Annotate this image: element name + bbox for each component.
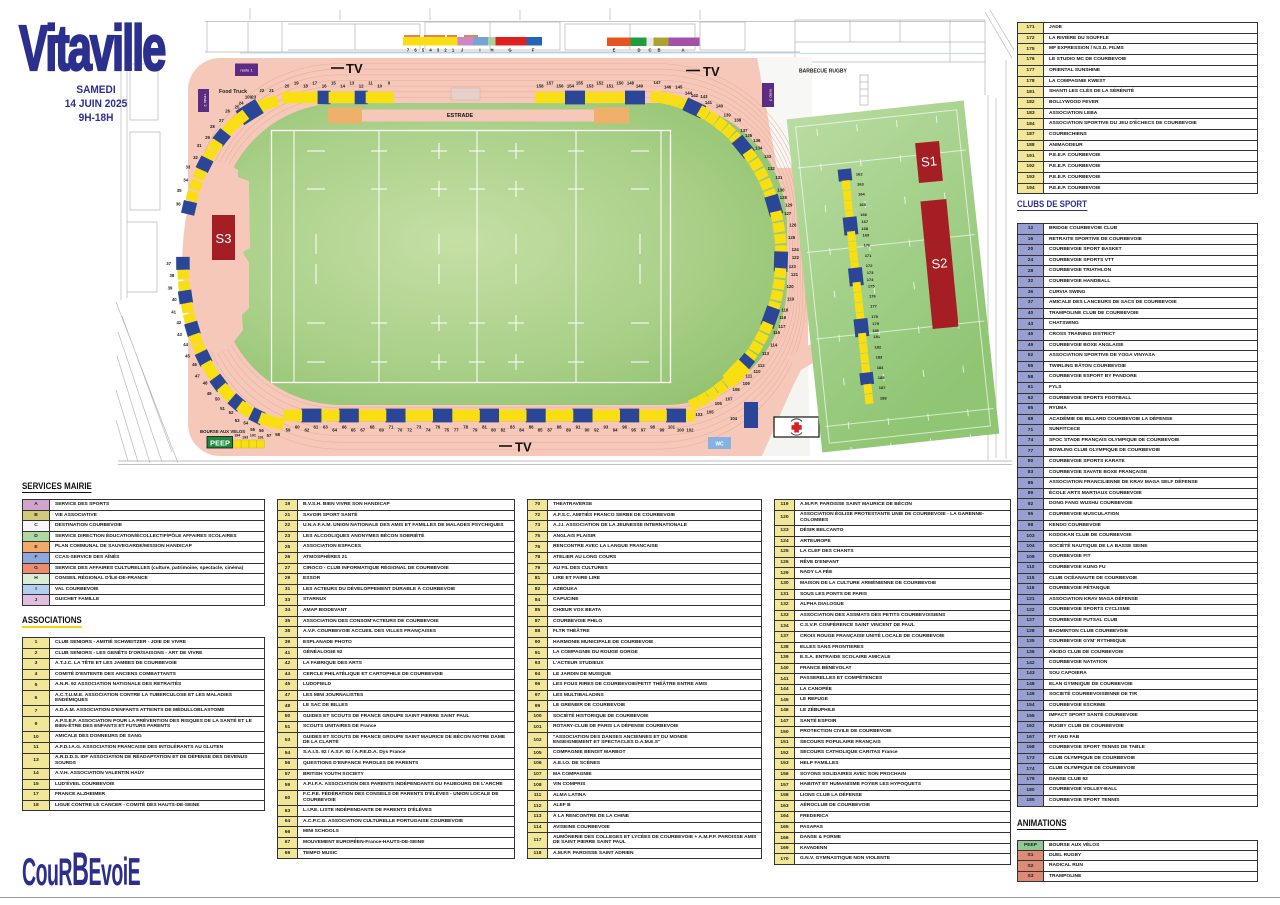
svg-text:S2: S2 xyxy=(931,255,948,271)
svg-text:120: 120 xyxy=(787,284,795,289)
svg-text:118: 118 xyxy=(781,308,789,313)
svg-text:82: 82 xyxy=(501,427,506,432)
svg-text:100: 100 xyxy=(677,427,685,432)
svg-text:148: 148 xyxy=(627,81,635,86)
svg-text:180: 180 xyxy=(872,328,879,333)
svg-text:133: 133 xyxy=(764,154,772,159)
svg-text:192: 192 xyxy=(250,434,256,438)
svg-text:175: 175 xyxy=(868,283,875,288)
svg-text:109: 109 xyxy=(245,95,253,100)
svg-text:162: 162 xyxy=(856,171,863,176)
svg-text:138: 138 xyxy=(734,118,742,123)
svg-text:89: 89 xyxy=(566,427,571,432)
svg-text:171: 171 xyxy=(865,253,872,258)
svg-text:90: 90 xyxy=(585,427,590,432)
svg-text:S1: S1 xyxy=(920,153,937,169)
svg-text:123: 123 xyxy=(789,264,797,269)
svg-text:70: 70 xyxy=(398,427,403,432)
svg-text:63: 63 xyxy=(323,425,328,430)
svg-text:145: 145 xyxy=(675,85,683,90)
svg-text:176: 176 xyxy=(869,294,876,299)
svg-text:114: 114 xyxy=(770,342,778,347)
svg-text:179: 179 xyxy=(872,321,879,326)
svg-text:67: 67 xyxy=(360,427,365,432)
svg-text:121: 121 xyxy=(791,272,799,277)
svg-text:105: 105 xyxy=(707,409,715,414)
svg-text:140: 140 xyxy=(716,103,724,108)
svg-text:29: 29 xyxy=(205,135,210,140)
svg-text:187: 187 xyxy=(879,385,886,390)
svg-text:13: 13 xyxy=(350,81,355,86)
svg-text:128: 128 xyxy=(780,195,788,200)
svg-text:15: 15 xyxy=(331,81,336,86)
svg-text:S3: S3 xyxy=(216,231,232,246)
svg-text:109: 109 xyxy=(743,381,751,386)
svg-text:153: 153 xyxy=(586,84,594,89)
svg-text:12: 12 xyxy=(359,84,364,89)
svg-text:73: 73 xyxy=(417,425,422,430)
svg-text:10: 10 xyxy=(377,84,382,89)
svg-text:163: 163 xyxy=(857,182,864,187)
svg-text:119: 119 xyxy=(787,297,795,302)
svg-text:81: 81 xyxy=(482,425,487,430)
svg-text:93: 93 xyxy=(604,425,609,430)
svg-text:31: 31 xyxy=(197,143,202,148)
svg-text:C: C xyxy=(648,48,651,53)
svg-text:42: 42 xyxy=(177,320,182,325)
svg-text:194: 194 xyxy=(234,434,240,438)
svg-text:182: 182 xyxy=(875,344,882,349)
svg-text:173: 173 xyxy=(867,270,874,275)
svg-text:17: 17 xyxy=(312,81,317,86)
svg-text:49: 49 xyxy=(207,391,212,396)
svg-text:164: 164 xyxy=(858,192,865,197)
svg-text:91: 91 xyxy=(576,425,581,430)
svg-text:98: 98 xyxy=(650,425,655,430)
svg-text:62: 62 xyxy=(305,427,310,432)
svg-text:56: 56 xyxy=(259,428,264,433)
svg-text:139: 139 xyxy=(724,112,732,117)
svg-text:130: 130 xyxy=(777,188,785,193)
svg-text:154: 154 xyxy=(567,84,575,89)
svg-text:14: 14 xyxy=(340,84,345,89)
svg-text:174: 174 xyxy=(867,277,874,282)
svg-text:94: 94 xyxy=(613,427,618,432)
svg-text:50: 50 xyxy=(215,397,220,402)
svg-text:20: 20 xyxy=(285,84,290,89)
svg-text:68: 68 xyxy=(370,425,375,430)
svg-text:107: 107 xyxy=(725,397,733,402)
svg-text:185: 185 xyxy=(878,375,885,380)
svg-text:41: 41 xyxy=(171,309,176,314)
svg-text:172: 172 xyxy=(866,263,873,268)
svg-text:B: B xyxy=(657,48,660,53)
svg-text:27: 27 xyxy=(219,118,224,123)
svg-text:116: 116 xyxy=(779,315,787,320)
svg-text:TV: TV xyxy=(346,61,363,76)
svg-text:117: 117 xyxy=(778,324,786,329)
svg-text:152: 152 xyxy=(596,81,604,86)
svg-text:113: 113 xyxy=(762,351,770,356)
svg-text:115: 115 xyxy=(773,330,781,335)
svg-text:59: 59 xyxy=(286,427,291,432)
svg-text:PEEP: PEEP xyxy=(210,439,230,448)
svg-text:79: 79 xyxy=(473,427,478,432)
svg-text:F: F xyxy=(532,48,535,53)
svg-text:184: 184 xyxy=(877,365,884,370)
svg-text:143: 143 xyxy=(700,94,708,99)
svg-text:101: 101 xyxy=(668,425,676,430)
svg-text:155: 155 xyxy=(576,81,584,86)
svg-text:G: G xyxy=(508,48,511,53)
svg-text:137: 137 xyxy=(740,128,748,133)
svg-text:69: 69 xyxy=(379,427,384,432)
svg-text:TV: TV xyxy=(703,64,720,79)
svg-text:22: 22 xyxy=(260,88,265,93)
svg-text:88: 88 xyxy=(557,425,562,430)
svg-text:183: 183 xyxy=(876,355,883,360)
svg-text:H: H xyxy=(490,48,493,53)
svg-text:65: 65 xyxy=(351,427,356,432)
svg-text:149: 149 xyxy=(636,84,644,89)
svg-text:51: 51 xyxy=(220,406,225,411)
svg-text:157: 157 xyxy=(546,81,554,86)
svg-text:TV: TV xyxy=(515,440,532,455)
svg-text:A: A xyxy=(681,48,684,53)
svg-text:106: 106 xyxy=(715,401,723,406)
svg-text:142: 142 xyxy=(691,93,699,98)
svg-text:21: 21 xyxy=(269,88,274,93)
svg-text:131: 131 xyxy=(775,175,783,180)
svg-text:168: 168 xyxy=(861,226,868,231)
svg-text:97: 97 xyxy=(641,427,646,432)
svg-text:178: 178 xyxy=(871,314,878,319)
svg-text:165: 165 xyxy=(859,202,866,207)
svg-text:32: 32 xyxy=(193,155,198,160)
svg-text:58: 58 xyxy=(275,432,280,437)
svg-text:39: 39 xyxy=(168,285,173,290)
svg-text:53: 53 xyxy=(235,418,240,423)
svg-text:95: 95 xyxy=(631,427,636,432)
svg-text:87: 87 xyxy=(547,427,552,432)
svg-text:66: 66 xyxy=(342,425,347,430)
svg-text:64: 64 xyxy=(332,427,337,432)
svg-text:146: 146 xyxy=(664,85,672,90)
svg-text:45: 45 xyxy=(185,354,190,359)
svg-text:84: 84 xyxy=(519,427,524,432)
svg-text:resto 3: resto 3 xyxy=(769,89,774,102)
svg-text:WC: WC xyxy=(715,442,724,448)
svg-text:44: 44 xyxy=(183,342,188,347)
svg-text:19: 19 xyxy=(294,81,299,86)
svg-text:78: 78 xyxy=(463,425,468,430)
svg-text:112: 112 xyxy=(758,363,766,368)
svg-text:191: 191 xyxy=(258,436,264,440)
svg-text:18: 18 xyxy=(303,84,308,89)
svg-text:47: 47 xyxy=(195,373,200,378)
svg-text:170: 170 xyxy=(864,243,871,248)
svg-text:102: 102 xyxy=(686,427,694,432)
svg-text:166: 166 xyxy=(860,212,867,217)
svg-text:83: 83 xyxy=(510,425,515,430)
svg-text:126: 126 xyxy=(789,222,797,227)
svg-text:129: 129 xyxy=(785,203,793,208)
svg-text:11: 11 xyxy=(368,81,373,86)
svg-text:24: 24 xyxy=(239,101,244,106)
svg-text:103: 103 xyxy=(695,412,703,417)
svg-text:132: 132 xyxy=(768,166,776,171)
svg-text:134: 134 xyxy=(755,146,763,151)
svg-text:135: 135 xyxy=(745,133,753,138)
svg-text:43: 43 xyxy=(177,332,182,337)
svg-text:104: 104 xyxy=(730,416,738,421)
svg-text:80: 80 xyxy=(491,427,496,432)
svg-text:36: 36 xyxy=(176,202,181,207)
svg-text:74: 74 xyxy=(426,427,431,432)
svg-text:150: 150 xyxy=(616,81,624,86)
svg-text:BARBECUE RUGBY: BARBECUE RUGBY xyxy=(799,69,847,75)
svg-text:ESTRADE: ESTRADE xyxy=(447,113,474,119)
svg-text:35: 35 xyxy=(177,188,182,193)
svg-text:177: 177 xyxy=(870,304,877,309)
svg-text:54: 54 xyxy=(243,421,248,426)
svg-text:151: 151 xyxy=(606,84,614,89)
svg-text:122: 122 xyxy=(792,255,800,260)
svg-text:52: 52 xyxy=(229,410,234,415)
svg-text:60: 60 xyxy=(295,425,300,430)
svg-text:55: 55 xyxy=(250,427,255,432)
svg-text:99: 99 xyxy=(660,427,665,432)
svg-text:110: 110 xyxy=(754,369,762,374)
svg-text:28: 28 xyxy=(210,124,215,129)
svg-text:125: 125 xyxy=(788,235,796,240)
svg-text:46: 46 xyxy=(192,362,197,367)
svg-text:141: 141 xyxy=(705,100,713,105)
svg-text:71: 71 xyxy=(389,425,394,430)
svg-text:86: 86 xyxy=(529,425,534,430)
svg-text:E: E xyxy=(613,48,616,53)
svg-text:193: 193 xyxy=(242,436,248,440)
svg-text:147: 147 xyxy=(654,80,662,85)
svg-text:23: 23 xyxy=(251,94,256,99)
svg-text:38: 38 xyxy=(170,273,175,278)
svg-text:156: 156 xyxy=(556,84,564,89)
svg-text:72: 72 xyxy=(407,427,412,432)
svg-text:158: 158 xyxy=(536,84,544,89)
svg-text:76: 76 xyxy=(435,425,440,430)
svg-text:92: 92 xyxy=(594,427,599,432)
svg-text:136: 136 xyxy=(753,138,761,143)
svg-text:25: 25 xyxy=(235,104,240,109)
svg-text:75: 75 xyxy=(444,427,449,432)
svg-text:124: 124 xyxy=(792,247,800,252)
svg-text:48: 48 xyxy=(203,381,208,386)
svg-text:169: 169 xyxy=(863,232,870,237)
svg-text:16: 16 xyxy=(322,84,327,89)
svg-text:I: I xyxy=(479,48,480,53)
svg-text:85: 85 xyxy=(538,427,543,432)
svg-text:37: 37 xyxy=(166,261,171,266)
svg-text:61: 61 xyxy=(314,425,319,430)
svg-text:57: 57 xyxy=(267,433,272,438)
svg-text:127: 127 xyxy=(784,211,792,216)
svg-text:96: 96 xyxy=(622,425,627,430)
svg-text:resto 1: resto 1 xyxy=(240,68,253,73)
svg-text:resto 2: resto 2 xyxy=(203,94,208,107)
svg-text:77: 77 xyxy=(454,427,459,432)
svg-text:40: 40 xyxy=(172,297,177,302)
svg-text:111: 111 xyxy=(746,374,753,379)
svg-text:167: 167 xyxy=(861,219,868,224)
svg-text:188: 188 xyxy=(880,395,887,400)
svg-text:33: 33 xyxy=(186,164,191,169)
svg-text:26: 26 xyxy=(225,108,230,113)
svg-text:108: 108 xyxy=(733,387,741,392)
svg-text:181: 181 xyxy=(873,334,880,339)
svg-text:34: 34 xyxy=(183,177,188,182)
svg-text:Food Truck: Food Truck xyxy=(219,89,247,95)
svg-text:D: D xyxy=(637,48,640,53)
